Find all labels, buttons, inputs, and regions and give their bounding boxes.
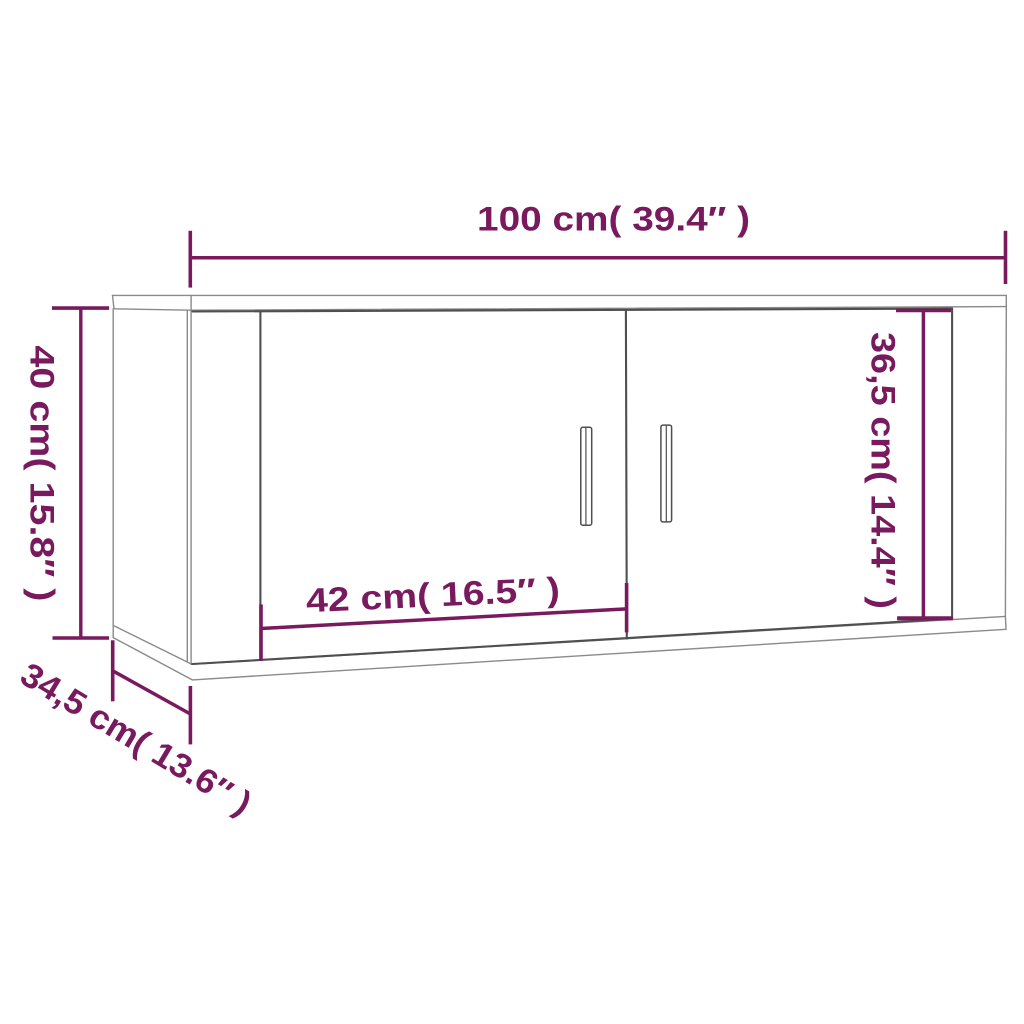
svg-text:100 cm( 39.4″ ): 100 cm( 39.4″ ) xyxy=(477,200,750,238)
svg-text:40 cm( 15.8″ ): 40 cm( 15.8″ ) xyxy=(23,345,61,601)
svg-text:36,5 cm( 14.4″ ): 36,5 cm( 14.4″ ) xyxy=(863,332,901,609)
